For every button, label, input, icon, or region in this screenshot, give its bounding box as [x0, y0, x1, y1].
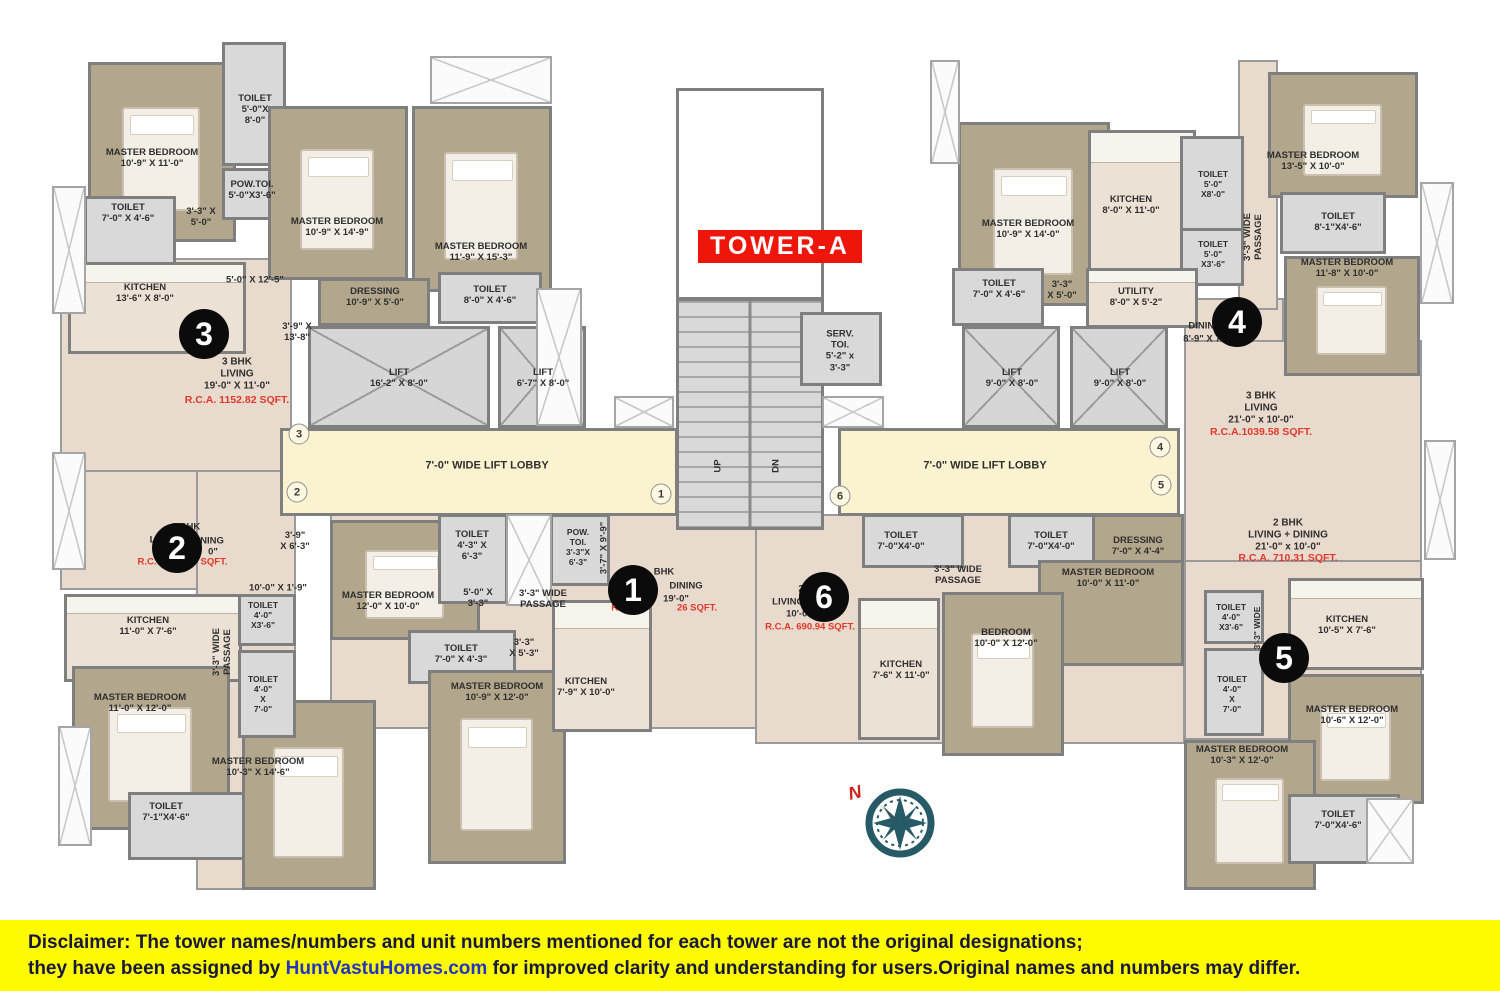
- plan-label: 7'-0" WIDE LIFT LOBBY: [425, 460, 548, 473]
- unit-badge-6: 6: [799, 572, 849, 622]
- plan-label: MASTER BEDROOM 12'-0" X 10'-0": [342, 590, 434, 612]
- plan-label: TOILET 5'-0" X8'-0": [1198, 169, 1228, 199]
- balcony: [536, 288, 582, 426]
- room-master-bedroom: [412, 106, 552, 292]
- disclaimer-bar: Disclaimer: The tower names/numbers and …: [0, 920, 1500, 991]
- plan-label: 3'-3" WIDE PASSAGE: [1242, 213, 1264, 261]
- plan-label: SERV. TOI. 5'-2" x 3'-3": [826, 329, 854, 374]
- plan-label: MASTER BEDROOM 10'-9" X 12'-0": [451, 681, 543, 703]
- plan-label: DINING: [669, 580, 702, 591]
- plan-label: MASTER BEDROOM 10'-9" X 11'-0": [106, 147, 198, 169]
- plan-label: TOILET 5'-0" X3'-6": [1198, 239, 1228, 269]
- door-marker-5: 5: [1151, 475, 1172, 496]
- plan-label: 3'-3" WIDE PASSAGE: [934, 564, 982, 586]
- plan-label: MASTER BEDROOM 10'-0" X 11'-0": [1062, 567, 1154, 589]
- plan-label: 3'-3" X 5'-0": [186, 206, 215, 228]
- disclaimer-prefix: Disclaimer:: [28, 932, 130, 953]
- door-marker-6: 6: [830, 486, 851, 507]
- door-marker-3: 3: [289, 424, 310, 445]
- balcony: [1424, 440, 1456, 560]
- plan-label: BHK: [654, 566, 675, 577]
- plan-label: TOILET 4'-3" X 6'-3": [455, 529, 489, 563]
- plan-label: 3'-3" WIDE PASSAGE: [519, 588, 567, 610]
- plan-label: TOILET 7'-0"X4'-6": [1314, 809, 1361, 831]
- plan-label: TOILET 5'-0"X 8'-0": [238, 93, 272, 127]
- plan-label: LIFT 9'-0" X 8'-0": [1094, 367, 1147, 389]
- plan-label: 3'-3" WIDE: [1252, 607, 1262, 650]
- plan-label: MASTER BEDROOM 10'-9" X 14'-9": [291, 216, 383, 238]
- unit-badge-5: 5: [1259, 633, 1309, 683]
- huntvastuhomes-link: HuntVastuHomes.com: [286, 958, 488, 979]
- plan-label: TOILET 4'-0" X 7'-0": [248, 674, 278, 714]
- plan-label: 3 BHK LIVING 19'-0" X 11'-0": [204, 356, 270, 391]
- door-marker-4: 4: [1150, 437, 1171, 458]
- plan-label: 3'-7" X 9'-9": [598, 522, 609, 575]
- balcony: [58, 726, 92, 846]
- plan-label: KITCHEN 10'-5" X 7'-6": [1318, 614, 1376, 636]
- plan-label: 5'-0" X 3'-3": [463, 587, 492, 609]
- balcony: [614, 396, 674, 428]
- plan-label: KITCHEN 7'-9" X 10'-0": [557, 676, 615, 698]
- plan-label: TOILET 7'-0" X 4'-3": [435, 643, 488, 665]
- room-stair-shaft: [676, 88, 824, 300]
- plan-label: 10'-0" X 1'-9": [249, 582, 307, 593]
- plan-label: TOILET 4'-0" X3'-6": [248, 600, 278, 630]
- plan-label: UTILITY 8'-0" X 5'-2": [1110, 286, 1163, 308]
- plan-label: 3'-3" WIDE PASSAGE: [211, 628, 233, 676]
- balcony: [52, 452, 86, 570]
- balcony: [1420, 182, 1454, 304]
- plan-label: TOILET 7'-1"X4'-6": [142, 801, 189, 823]
- plan-label: TOILET 7'-0" X 4'-6": [973, 278, 1026, 300]
- plan-label: TOILET 7'-0"X4'-0": [1027, 530, 1074, 552]
- unit-badge-2: 2: [152, 523, 202, 573]
- room-master-bedroom: [268, 106, 408, 280]
- plan-label: MASTER BEDROOM 11'-9" X 15'-3": [435, 241, 527, 263]
- unit-badge-1: 1: [608, 565, 658, 615]
- bed-icon: [460, 718, 533, 831]
- plan-label: BEDROOM 10'-0" X 12'-0": [974, 627, 1037, 649]
- plan-label: KITCHEN 8'-0" X 11'-0": [1102, 194, 1159, 216]
- balcony: [930, 60, 960, 164]
- plan-label: UP: [712, 459, 723, 472]
- disclaimer-line-2: they have been assigned by HuntVastuHome…: [28, 956, 1500, 982]
- svg-text:N: N: [846, 781, 864, 804]
- bed-icon: [1316, 286, 1388, 354]
- plan-label: MASTER BEDROOM 10'-3" X 14'-6": [212, 756, 304, 778]
- plan-label: KITCHEN 11'-0" X 7'-6": [119, 615, 176, 637]
- plan-label: SQFT.: [201, 556, 228, 567]
- floor-plan-page: MASTER BEDROOM 10'-9" X 11'-0"TOILET 5'-…: [0, 0, 1500, 991]
- plan-label: TOILET 7'-0" X 4'-6": [102, 202, 155, 224]
- plan-label: MASTER BEDROOM 10'-3" X 12'-0": [1196, 744, 1288, 766]
- plan-label: TOILET 7'-0"X4'-0": [877, 530, 924, 552]
- tower-title: TOWER-A: [698, 230, 862, 263]
- unit-badge-3: 3: [179, 309, 229, 359]
- plan-label: 26 SQFT.: [677, 602, 717, 613]
- compass-icon: N: [846, 776, 946, 868]
- plan-label: POW.TOI. 5'-0"X3'-6": [228, 179, 275, 201]
- room-bedroom: [942, 592, 1064, 756]
- plan-label: DN: [770, 459, 781, 473]
- plan-label: POW. TOI. 3'-3"X 6'-3": [566, 527, 590, 567]
- plan-label: DRESSING 10'-9" X 5'-0": [346, 286, 404, 308]
- balcony: [1366, 798, 1414, 864]
- plan-label: R.C.A. 1152.82 SQFT.: [185, 394, 289, 406]
- room-kitchen: [552, 600, 652, 732]
- plan-label: LIFT 6'-7" X 8'-0": [517, 367, 570, 389]
- plan-label: KITCHEN 13'-6" X 8'-0": [116, 282, 174, 304]
- bed-icon: [1215, 778, 1284, 864]
- plan-label: R.C.A.1039.58 SQFT.: [1210, 426, 1312, 438]
- plan-label: 3 BHK LIVING 21'-0" x 10'-0": [1228, 390, 1293, 425]
- plan-label: NING: [200, 535, 224, 546]
- plan-label: TOILET 4'-0" X 7'-0": [1217, 674, 1247, 714]
- unit-badge-4: 4: [1212, 297, 1262, 347]
- plan-label: MASTER BEDROOM 10'-6" X 12'-0": [1306, 704, 1398, 726]
- balcony: [822, 396, 884, 428]
- bed-icon: [108, 707, 192, 802]
- plan-label: MASTER BEDROOM 11'-0" X 12'-0": [94, 692, 186, 714]
- plan-label: TOILET 8'-1"X4'-6": [1314, 211, 1361, 233]
- room-master-bedroom: [1268, 72, 1418, 198]
- plan-label: 3'-9" X 6'-3": [280, 530, 309, 552]
- door-marker-2: 2: [287, 482, 308, 503]
- balcony: [52, 186, 86, 314]
- plan-label: R.C.A. 690.94 SQFT.: [765, 621, 855, 632]
- plan-label: 3'-3" X 5'-3": [509, 637, 538, 659]
- door-marker-1: 1: [651, 484, 672, 505]
- balcony: [430, 56, 552, 104]
- plan-label: LIFT 16'-2" X 8'-0": [370, 367, 428, 389]
- disclaimer-line-1: Disclaimer: The tower names/numbers and …: [28, 930, 1500, 956]
- plan-label: MASTER BEDROOM 11'-8" X 10'-0": [1301, 257, 1393, 279]
- plan-label: R.C.A. 710.31 SQFT.: [1238, 552, 1337, 564]
- plan-label: LIFT 9'-0" X 8'-0": [986, 367, 1039, 389]
- plan-label: 3'-9" X 13'-8": [282, 321, 311, 343]
- plan-label: 5'-0" X 12'-5": [226, 274, 284, 285]
- plan-label: 7'-0" WIDE LIFT LOBBY: [923, 460, 1046, 473]
- floor-plan-canvas: MASTER BEDROOM 10'-9" X 11'-0"TOILET 5'-…: [0, 0, 1500, 920]
- plan-label: 2 BHK LIVING + DINING 21'-0" x 10'-0": [1248, 517, 1328, 552]
- plan-label: DRESSING 7'-0" X 4'-4": [1112, 535, 1165, 557]
- plan-label: TOILET 4'-0" X3'-6": [1216, 602, 1246, 632]
- plan-label: MASTER BEDROOM 13'-5" X 10'-0": [1267, 150, 1359, 172]
- plan-label: TOILET 8'-0" X 4'-6": [464, 284, 517, 306]
- plan-label: KITCHEN 7'-6" X 11'-0": [872, 659, 929, 681]
- plan-label: 3'-3" X 5'-0": [1047, 279, 1076, 301]
- plan-label: MASTER BEDROOM 10'-9" X 14'-0": [982, 218, 1074, 240]
